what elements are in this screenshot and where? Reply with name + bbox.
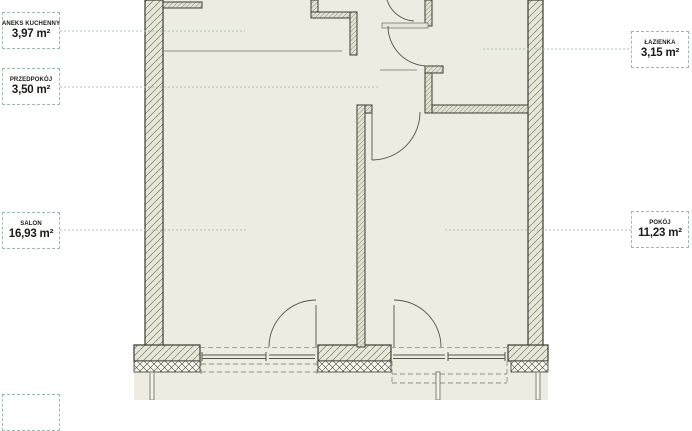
bottom-wall-pier-middle xyxy=(318,345,391,361)
hall-partition-vertical-bottom xyxy=(350,12,357,55)
room-area: 3,50 m² xyxy=(12,84,50,97)
bathroom-wall-top xyxy=(425,0,432,26)
bathroom-wall-jamb xyxy=(425,66,443,73)
salon-bedroom-wall xyxy=(357,105,365,347)
floor-fill xyxy=(134,0,548,400)
room-name: POKÓJ xyxy=(649,219,671,227)
bottom-wall-pier-right xyxy=(508,345,548,361)
label-box-przedpokoj: PRZEDPOKÓJ 3,50 m² xyxy=(2,68,60,105)
bathroom-floor-wall xyxy=(432,105,528,113)
room-name: PRZEDPOKÓJ xyxy=(10,76,52,84)
room-name: SALON xyxy=(20,220,42,228)
room-area: 3,97 m² xyxy=(12,28,50,41)
room-name: ŁAZIENKA xyxy=(644,39,675,47)
label-box-pokoj: POKÓJ 11,23 m² xyxy=(631,211,689,248)
kitchen-wall-stub xyxy=(163,2,202,8)
floor-plan-drawing xyxy=(0,0,692,400)
bathroom-door-leaf xyxy=(382,23,428,28)
exterior-wall-right xyxy=(528,0,543,346)
room-area: 3,15 m² xyxy=(641,47,679,60)
bottom-wall-pier-left xyxy=(134,345,200,361)
room-name: ANEKS KUCHENNY xyxy=(2,20,60,28)
label-box-salon: SALON 16,93 m² xyxy=(2,212,60,249)
label-box-aneks-kuchenny: ANEKS KUCHENNY 3,97 m² xyxy=(2,12,60,49)
floor-plan-page: { "plan": { "type": "apartment-floor-pla… xyxy=(0,0,692,400)
exterior-wall-left xyxy=(145,0,163,347)
room-area: 11,23 m² xyxy=(638,227,682,240)
room-area: 16,93 m² xyxy=(9,228,53,241)
label-box-lazienka: ŁAZIENKA 3,15 m² xyxy=(631,31,689,68)
